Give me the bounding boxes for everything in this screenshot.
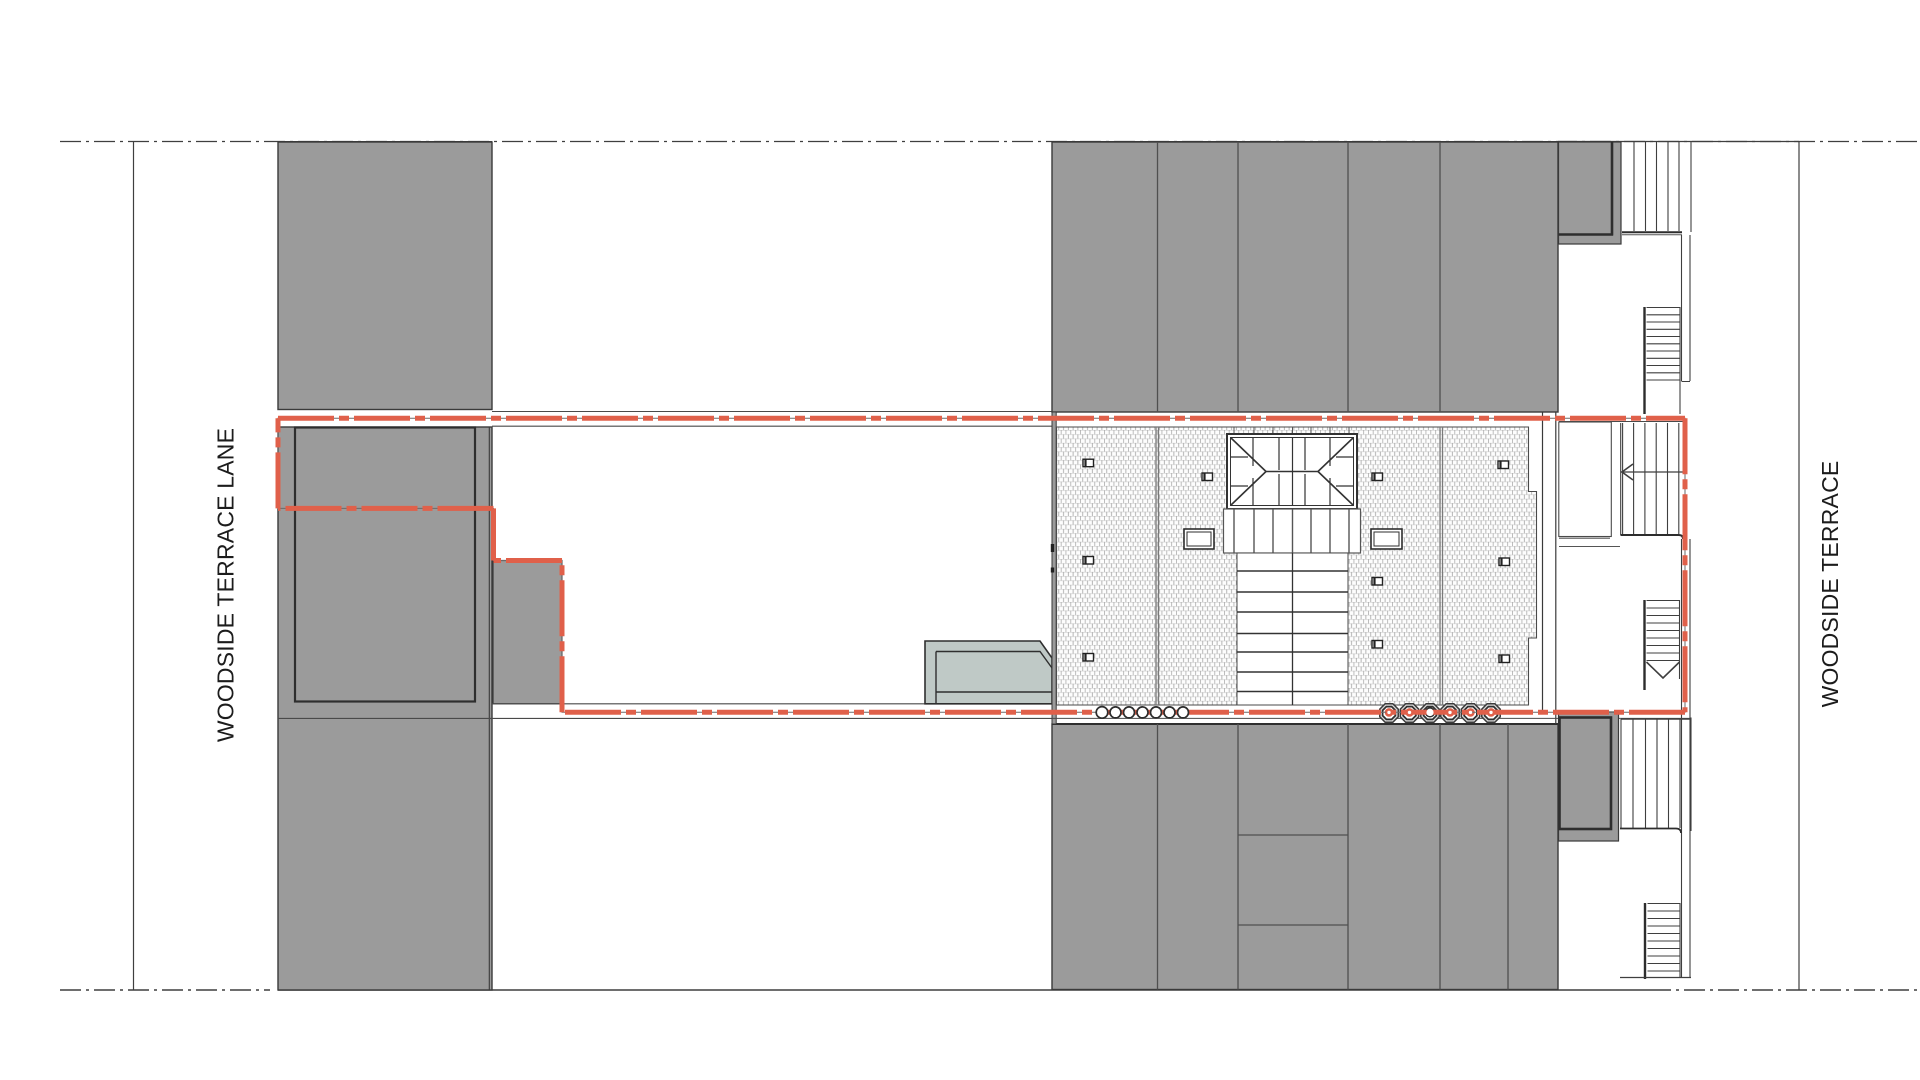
svg-text:WOODSIDE TERRACE LANE: WOODSIDE TERRACE LANE: [213, 428, 239, 742]
svg-text:WOODSIDE TERRACE: WOODSIDE TERRACE: [1817, 461, 1843, 708]
